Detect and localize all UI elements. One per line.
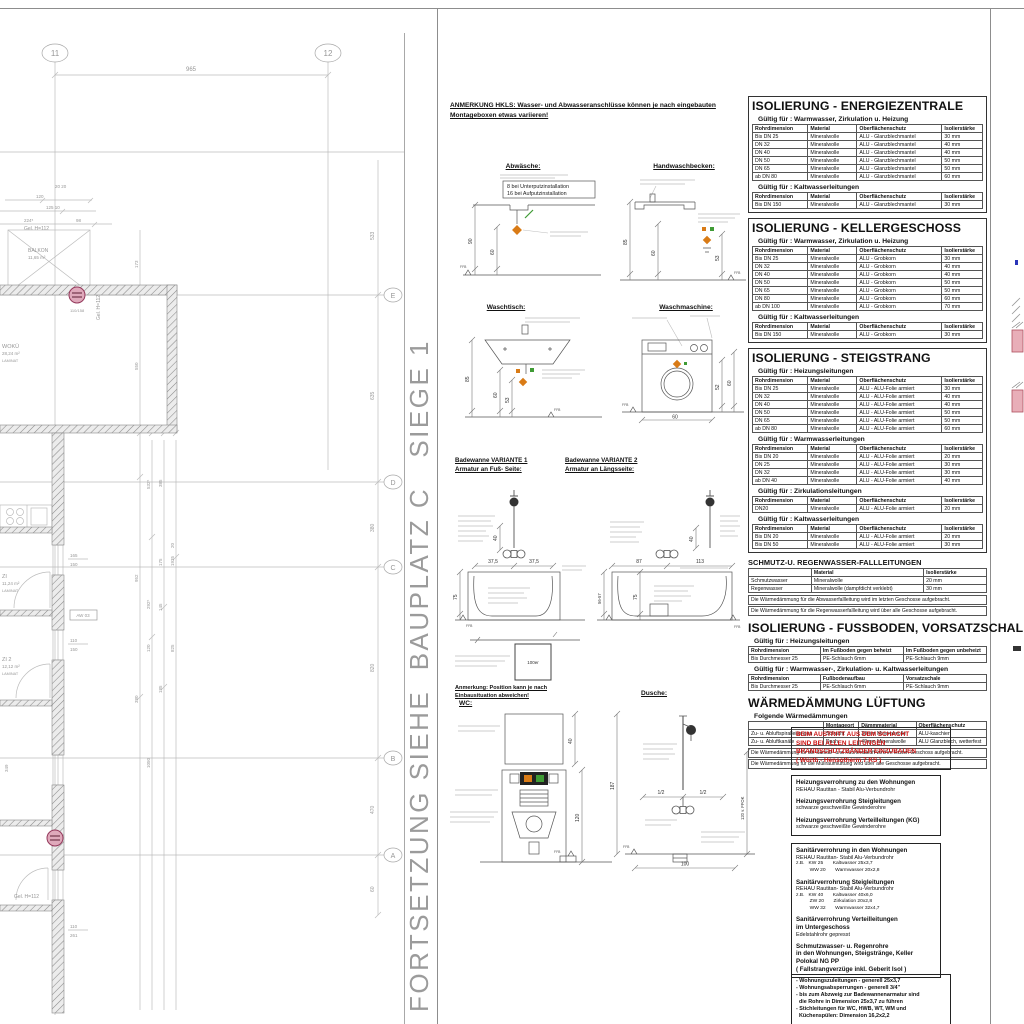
hot-water-mark — [702, 227, 706, 231]
table-row: DN 65MineralwolleALU - Glanzblechmantel5… — [753, 165, 983, 173]
table-header-row: RohrdimensionMaterialOberflächenschutzIs… — [753, 125, 983, 133]
annotation-scribble — [562, 566, 586, 570]
table-cell: ALU - Glanzblechmantel — [857, 165, 942, 173]
column-header: Oberflächenschutz — [857, 445, 942, 453]
table-cell: DN 65 — [753, 165, 808, 173]
spec-line: Schmutzwasser- u. Regenrohre — [796, 943, 936, 951]
dimension-text: 1050 — [146, 757, 151, 768]
table-cell: Mineralwolle — [808, 461, 857, 469]
table-row: RegenwasserMineralwolle (dampfdicht verk… — [749, 585, 987, 593]
note-bullet: - bis zum Abzweig zur Badewannenarmatur … — [796, 992, 946, 999]
insulation-table: ISOLIERUNG - KELLERGESCHOSS Gültig für :… — [748, 218, 987, 343]
table-cell: Mineralwolle — [808, 255, 857, 263]
level-mark — [460, 615, 466, 620]
spec-box: Heizungsverrohrung zu den Wohnungen REHA… — [791, 775, 941, 836]
install-note-line1: 8 bei Unterputzinstallation — [507, 184, 569, 190]
kitchen-counter — [0, 505, 52, 529]
dimension-text: 1/2 — [700, 790, 707, 796]
abwaesche-drawing: 8 bei Unterputzinstallation 16 bei Aufpu… — [455, 172, 605, 287]
table-cell: Bis DN 150 — [753, 201, 808, 209]
dimension-text: 292⁵ — [146, 599, 151, 609]
table-cell: Bis Durchmesser 25 — [749, 655, 821, 663]
table-cell: 50 mm — [942, 409, 983, 417]
data-table: MaterialIsolierstärke SchmutzwasserMiner… — [748, 568, 987, 593]
table-cell: 60 mm — [942, 295, 983, 303]
dimension-text: 185 — [158, 685, 163, 693]
table-cell: PE-Schlauch 6mm — [820, 683, 903, 691]
table-cell: ALU - Grobkorn — [857, 271, 942, 279]
table-cell: DN 40 — [753, 271, 808, 279]
table-cell: Bis DN 50 — [753, 541, 808, 549]
column-header: Material — [808, 125, 857, 133]
cold-water-mark — [684, 362, 687, 365]
room-note: Gel. H=112 — [14, 894, 39, 900]
grid-bubble-label: C — [390, 565, 395, 572]
table-row: ab DN 80MineralwolleALU - Glanzblechmant… — [753, 173, 983, 181]
riser-symbol — [69, 287, 85, 303]
grid-bubble-label: D — [390, 480, 395, 487]
leader-line — [523, 230, 548, 233]
table-cell: ALU - Grobkorn — [857, 331, 942, 339]
table-note: Die Wärmedämmung für die Regenwasserfall… — [748, 606, 987, 616]
dimension-text: 187 — [610, 781, 616, 790]
table-cell: 40 mm — [942, 401, 983, 409]
cold-water-mark — [530, 368, 534, 372]
dimension-text: 1/2 — [658, 790, 665, 796]
label-badewanne2: Badewanne VARIANTE 2 Armatur an Längssei… — [565, 456, 637, 475]
table-cell: Mineralwolle (dampfdicht verklebt) — [811, 585, 923, 593]
table-header-row: RohrdimensionMaterialOberflächenschutzIs… — [753, 525, 983, 533]
grid-bubble-label: 11 — [51, 49, 60, 58]
table-cell: DN 80 — [753, 295, 808, 303]
shower-head-icon — [510, 498, 519, 507]
leader-line — [667, 318, 712, 346]
data-table: RohrdimensionMaterialOberflächenschutzIs… — [752, 444, 983, 485]
note-bullet: die Rohre in Dimension 25x3,7 zu führen — [796, 999, 946, 1006]
dimension-text: 380 — [370, 523, 376, 532]
table-cell: Mineralwolle — [808, 173, 857, 181]
insulation-table: ISOLIERUNG - STEIGSTRANG Gültig für : He… — [748, 348, 987, 553]
dimension-text: 53 — [715, 255, 721, 261]
riser-note: 110/158 — [70, 308, 85, 313]
column-header: Material — [808, 525, 857, 533]
table-note: Die Wärmedämmung für die Abwasserfalllei… — [748, 595, 987, 605]
table-cell: DN 50 — [753, 409, 808, 417]
column-header: Material — [808, 497, 857, 505]
level-mark — [548, 412, 554, 417]
table-cell: ALU - ALU-Folie armiert — [857, 425, 942, 433]
table-row: Bis DN 150MineralwolleALU - Glanzblechma… — [753, 201, 983, 209]
table-row: ab DN 40MineralwolleALU - ALU-Folie armi… — [753, 477, 983, 485]
column-header: Isolierstärke — [942, 247, 983, 255]
level-mark — [465, 270, 471, 275]
column-header: Material — [808, 323, 857, 331]
table-cell: 30 mm — [942, 385, 983, 393]
table-section: Gültig für : Heizungsleitungen Rohrdimen… — [748, 638, 987, 663]
data-table: RohrdimensionMaterialOberflächenschutzIs… — [752, 376, 983, 433]
spec-box: Sanitärverrohrung in den Wohnungen REHAU… — [791, 843, 941, 978]
table-cell: 20 mm — [942, 453, 983, 461]
table-cell: 50 mm — [942, 287, 983, 295]
room-label: ZI 2 — [2, 657, 11, 663]
table-cell: ALU - ALU-Folie armiert — [857, 453, 942, 461]
level-label: FFB — [623, 845, 630, 849]
table-cell: DN 25 — [753, 461, 808, 469]
table-cell: ALU - ALU-Folie armiert — [857, 417, 942, 425]
data-table: RohrdimensionMaterialOberflächenschutzIs… — [752, 524, 983, 549]
table-row: Bis DN 20MineralwolleALU - ALU-Folie arm… — [753, 533, 983, 541]
column-header: Material — [808, 247, 857, 255]
hkls-remark-line2: Montageboxen etwas variieren! — [450, 111, 742, 121]
room-note: Gel. H=112 — [96, 295, 102, 320]
table-subtitle: Folgende Wärmedämmungen — [754, 713, 987, 720]
spec-line: Heizungsverrohrung Steigleitungen — [796, 798, 936, 806]
dimension-text: 60 — [493, 392, 499, 398]
level-label: FFB — [554, 408, 561, 412]
table-cell: 50 mm — [942, 157, 983, 165]
table-header-row: RohrdimensionFußbodenaufbauVorsatzschale — [749, 675, 987, 683]
table-row: DN 25MineralwolleALU - ALU-Folie armiert… — [753, 461, 983, 469]
table-cell: ALU - Glanzblechmantel — [857, 149, 942, 157]
table-cell: Schmutzwasser — [749, 577, 812, 585]
table-cell: ALU - ALU-Folie armiert — [857, 505, 942, 513]
table-section: Gültig für : Zirkulationsleitungen Rohrd… — [752, 488, 983, 513]
dimension-text: 85 — [465, 376, 471, 382]
data-table: RohrdimensionIm Fußboden gegen beheiztIm… — [748, 646, 987, 663]
dimension-text: 125 10 — [46, 205, 60, 210]
column-header: Oberflächenschutz — [857, 125, 942, 133]
table-cell: Mineralwolle — [808, 133, 857, 141]
table-cell: 30 mm — [924, 585, 987, 593]
table-cell: 60 mm — [942, 173, 983, 181]
spec-line: Heizungsverrohrung Verteilleitungen (KG) — [796, 817, 936, 825]
table-cell: Mineralwolle — [808, 157, 857, 165]
badewanne2-title: Badewanne VARIANTE 2 — [565, 456, 637, 465]
table-cell: Mineralwolle — [808, 533, 857, 541]
table-header-row: RohrdimensionMaterialOberflächenschutzIs… — [753, 193, 983, 201]
spec-line: Heizungsverrohrung zu den Wohnungen — [796, 779, 936, 787]
valve-icon — [519, 378, 527, 386]
column-header: Fußbodenaufbau — [820, 675, 903, 683]
table-cell: ALU - ALU-Folie armiert — [857, 469, 942, 477]
column-header: Rohrdimension — [753, 445, 808, 453]
annotation-scribble — [455, 656, 510, 666]
room-label: BALKON — [28, 248, 49, 254]
dimension-text: 113 — [696, 559, 704, 565]
table-cell: Bis DN 150 — [753, 331, 808, 339]
level-mark — [728, 275, 734, 280]
table-cell: PE-Schlauch 9mm — [903, 683, 986, 691]
shower-head-icon — [686, 725, 696, 735]
grid-bubble-label: 12 — [324, 49, 333, 58]
annotation-scribble — [640, 180, 695, 184]
table-header-row: RohrdimensionMaterialOberflächenschutzIs… — [753, 377, 983, 385]
annotation-scribble — [458, 726, 500, 731]
table-cell: 30 mm — [942, 541, 983, 549]
data-table: RohrdimensionMaterialOberflächenschutzIs… — [752, 496, 983, 513]
table-cell: ALU - Glanzblechmantel — [857, 173, 942, 181]
table-cell: Mineralwolle — [808, 541, 857, 549]
data-table: RohrdimensionMaterialOberflächenschutzIs… — [752, 246, 983, 311]
level-label: FFB — [734, 625, 741, 629]
dimension-text: 100 — [681, 862, 690, 868]
dimension-text: 40 — [493, 535, 499, 541]
table-header-row: RohrdimensionMaterialOberflächenschutzIs… — [753, 445, 983, 453]
room-area: 11,65 m² — [28, 255, 46, 260]
column-header: Oberflächenschutz — [857, 525, 942, 533]
blue-mark — [1015, 260, 1018, 265]
table-cell: 30 mm — [942, 133, 983, 141]
column-header: Oberflächenschutz — [857, 497, 942, 505]
position-remark: Anmerkung: Position kann je nach Einbaus… — [455, 684, 547, 701]
table-cell: Bis DN 25 — [753, 385, 808, 393]
window-dim: 150 — [70, 647, 78, 652]
dimension-text: 349 — [4, 764, 9, 772]
table-row: DN 50MineralwolleALU - Glanzblechmantel5… — [753, 157, 983, 165]
flush-button-green — [536, 775, 544, 782]
table-row: DN 32MineralwolleALU - Grobkorn40 mm — [753, 263, 983, 271]
hot-water-mark — [516, 369, 520, 373]
column-header: Im Fußboden gegen unbeheizt — [903, 647, 986, 655]
label-wc: WC: — [459, 700, 489, 707]
dimension-text: 173 — [134, 260, 139, 268]
table-cell: Mineralwolle — [808, 149, 857, 157]
column-header: Isolierstärke — [942, 497, 983, 505]
dimension-text: 90 — [468, 238, 474, 244]
column-header: Rohrdimension — [753, 377, 808, 385]
hkls-remark-line1: ANMERKUNG HKLS: Wasser- und Abwasseransc… — [450, 101, 742, 111]
table-cell: ALU - Grobkorn — [857, 255, 942, 263]
warning-line: BRANDSCHUTZBÄNDER EINZUBAUEN — [796, 748, 946, 757]
table-cell: ALU - ALU-Folie armiert — [857, 409, 942, 417]
note-bullet: - Wohnungszuleitungen - generell 25x3,7 — [796, 978, 946, 985]
table-cell: Regenwasser — [749, 585, 812, 593]
grid-bubble-label: B — [391, 756, 396, 763]
wc-drawing: 40 120 FFB — [450, 712, 620, 872]
floor-plan: 11 12 E D C B A 965 533 635 380 820 470 … — [0, 0, 437, 1024]
table-row: ab DN 80MineralwolleALU - ALU-Folie armi… — [753, 425, 983, 433]
table-header-row: RohrdimensionIm Fußboden gegen beheiztIm… — [749, 647, 987, 655]
table-cell: ALU - Grobkorn — [857, 303, 942, 311]
table-cell: 40 mm — [942, 477, 983, 485]
table-cell: Mineralwolle — [808, 393, 857, 401]
table-cell: 40 mm — [942, 393, 983, 401]
annotation-scribble — [455, 790, 498, 795]
dimension-text: 532⁵ — [146, 479, 151, 489]
continuation-label: FORTSETZUNG SIEHE BAUPLATZ C SIEGE 1 — [404, 30, 438, 1012]
table-cell: DN 65 — [753, 417, 808, 425]
column-header: Material — [808, 445, 857, 453]
column-header: Isolierstärke — [924, 569, 987, 577]
dimension-text: 550 — [134, 362, 139, 370]
column-header: Rohrdimension — [753, 125, 808, 133]
room-note: Gel. H=112 — [24, 226, 49, 232]
table-row: Bis DN 20MineralwolleALU - ALU-Folie arm… — [753, 453, 983, 461]
table-cell: ab DN 80 — [753, 173, 808, 181]
table-row: DN 50MineralwolleALU - ALU-Folie armiert… — [753, 409, 983, 417]
badewanne1-title: Badewanne VARIANTE 1 — [455, 456, 527, 465]
dimension-text: 175 — [158, 558, 163, 566]
annotation-scribble — [500, 175, 568, 178]
room-area: 12,12 m² — [2, 664, 20, 669]
mixer-tap-symbol — [672, 797, 694, 814]
dimension-text: 120 — [146, 644, 151, 652]
level-label: FFB — [460, 265, 467, 269]
level-label: FFB — [554, 850, 561, 854]
column-header: Rohrdimension — [749, 675, 821, 683]
table-cell: Mineralwolle — [808, 271, 857, 279]
column-header: Rohrdimension — [753, 323, 808, 331]
table-cell: ALU - ALU-Folie armiert — [857, 393, 942, 401]
level-mark — [631, 849, 637, 854]
table-cell: ALU - ALU-Folie armiert — [857, 385, 942, 393]
table-row: ab DN 100MineralwolleALU - Grobkorn70 mm — [753, 303, 983, 311]
room-finish: LAMINAT — [2, 359, 19, 363]
data-table: RohrdimensionMaterialOberflächenschutzIs… — [752, 322, 983, 339]
table-cell: PE-Schlauch 6mm — [820, 655, 903, 663]
table-header-row: RohrdimensionMaterialOberflächenschutzIs… — [753, 247, 983, 255]
label-waschtisch: Waschtisch: — [466, 304, 546, 311]
hatch-mark — [1012, 322, 1023, 328]
table-subtitle: Gültig für : Zirkulationsleitungen — [758, 488, 983, 495]
table-section: Gültig für : Kaltwasserleitungen Rohrdim… — [752, 516, 983, 549]
table-cell: Mineralwolle — [808, 417, 857, 425]
data-table: RohrdimensionMaterialOberflächenschutzIs… — [752, 124, 983, 181]
cold-water-mark — [710, 227, 714, 231]
handwaschbecken-drawing: 85 60 53 FFB — [610, 172, 750, 292]
dimension-text: 40 — [689, 536, 695, 542]
table-cell: Mineralwolle — [808, 303, 857, 311]
column-header: Vorsatzschale — [903, 675, 986, 683]
column-header: Material — [808, 377, 857, 385]
table-subtitle: Gültig für : Warmwasser, Zirkulation u. … — [758, 116, 983, 123]
dimension-text: 120 — [36, 194, 44, 199]
annotation-scribble — [654, 586, 694, 601]
dimension-text: 37,5 — [529, 559, 539, 565]
annotation-scribble — [610, 522, 644, 542]
table-row: SchmutzwasserMineralwolle20 mm — [749, 577, 987, 585]
dimension-text: 60 — [727, 380, 733, 386]
table-cell: 30 mm — [942, 461, 983, 469]
table-cell: 30 mm — [942, 469, 983, 477]
dimension-text: 37,5 — [488, 559, 498, 565]
dimension-text: 825 — [170, 644, 175, 652]
label-waschmaschine: Waschmaschine: — [636, 304, 736, 311]
table-row: Bis Durchmesser 25PE-Schlauch 6mmPE-Schl… — [749, 683, 987, 691]
annotation-scribble — [458, 516, 495, 541]
data-table: RohrdimensionMaterialOberflächenschutzIs… — [752, 192, 983, 209]
table-cell: ALU - Grobkorn — [857, 279, 942, 287]
table-cell: 40 mm — [942, 271, 983, 279]
element-tag: AW 03 — [76, 613, 90, 618]
spec-line: in den Wohnungen, Steigstränge, Keller — [796, 950, 936, 958]
dusche-drawing: 187 120 v. FFOK 1/2 1/2 100 FFB — [605, 702, 765, 872]
spec-line: WW 32 Warmwasser 32x4,7 — [796, 906, 936, 912]
table-cell: ALU - ALU-Folie armiert — [857, 401, 942, 409]
spec-line: WW 20 Warmwasser 20x2,8 — [796, 868, 936, 874]
table-cell: DN 32 — [753, 469, 808, 477]
table-cell: Mineralwolle — [808, 453, 857, 461]
column-header: Isolierstärke — [942, 193, 983, 201]
table-header-row: RohrdimensionMaterialOberflächenschutzIs… — [753, 497, 983, 505]
table-cell: Mineralwolle — [808, 409, 857, 417]
door-swing-arcs — [14, 572, 50, 900]
access-box-drawing: 100er — [455, 628, 585, 686]
table-cell: 20 mm — [924, 577, 987, 585]
warning-line: BEIM AUSTRITT AUS DEM SCHACHT — [796, 731, 946, 740]
table-row: DN 40MineralwolleALU - Grobkorn40 mm — [753, 271, 983, 279]
room-finish: LAMINAT — [2, 589, 19, 593]
room-finish: LAMINAT — [2, 672, 19, 676]
table-cell: 50 mm — [942, 165, 983, 173]
waschtisch-drawing: 85 60 53 FFB — [450, 312, 610, 427]
insulation-table: SCHMUTZ-U. REGENWASSER-FALLLEITUNGEN Mat… — [748, 558, 987, 616]
annotation-scribble — [632, 316, 720, 318]
table-subtitle: Gültig für : Kaltwasserleitungen — [758, 184, 983, 191]
valve-icon — [512, 225, 522, 235]
table-title: SCHMUTZ-U. REGENWASSER-FALLLEITUNGEN — [748, 558, 987, 567]
dimension-text: 952 — [134, 574, 139, 582]
pink-detail-cutoff — [1012, 390, 1023, 412]
label-abwaesche: Abwäsche: — [488, 163, 558, 170]
spec-line: REHAU Rautitan - Stabil Alu-Verbundrohr — [796, 787, 936, 794]
table-cell: ALU - Glanzblechmantel — [857, 141, 942, 149]
column-header: Oberflächenschutz — [857, 377, 942, 385]
grid-bubbles — [42, 44, 402, 862]
hatch-mark — [1012, 382, 1023, 388]
table-section: Gültig für : Warmwasserleitungen Rohrdim… — [752, 436, 983, 485]
room-label: WOKÜ — [2, 343, 19, 350]
table-cell: DN20 — [753, 505, 808, 513]
column-header: Isolierstärke — [942, 377, 983, 385]
table-section: Gültig für : Warmwasser, Zirkulation u. … — [752, 116, 983, 181]
column-header: Isolierstärke — [942, 125, 983, 133]
table-cell: ab DN 40 — [753, 477, 808, 485]
spec-line: ( Fallstrangverzüge inkl. Geberit Isol ) — [796, 966, 936, 974]
table-cell: 20 mm — [942, 533, 983, 541]
table-cell: 70 mm — [942, 303, 983, 311]
column-header: Material — [811, 569, 923, 577]
table-row: DN 50MineralwolleALU - Grobkorn50 mm — [753, 279, 983, 287]
table-row: Bis DN 50MineralwolleALU - ALU-Folie arm… — [753, 541, 983, 549]
table-cell: DN 32 — [753, 141, 808, 149]
right-dimension-chain — [375, 160, 381, 918]
annotation-scribble — [525, 318, 580, 322]
level-label: FFB — [622, 403, 629, 407]
table-cell: Bis DN 20 — [753, 533, 808, 541]
table-cell: DN 50 — [753, 157, 808, 165]
dimension-text: 52 — [715, 384, 721, 390]
riser-symbol-2 — [47, 830, 63, 846]
note-bullet: Küchenspülen: Dimension 16,2x2,2 — [796, 1013, 946, 1020]
table-cell: Bis Durchmesser 25 — [749, 683, 821, 691]
table-cell: ALU - Grobkorn — [857, 263, 942, 271]
badewanne2-subtitle: Armatur an Längsseite: — [565, 465, 637, 474]
table-row: DN 32MineralwolleALU - Glanzblechmantel4… — [753, 141, 983, 149]
column-header: Isolierstärke — [942, 445, 983, 453]
table-cell: Mineralwolle — [808, 505, 857, 513]
table-cell: DN 40 — [753, 401, 808, 409]
window-dim: 165 — [70, 553, 78, 558]
general-notes-box: - Wohnungszuleitungen - generell 25x3,7 … — [791, 974, 951, 1024]
table-section: MaterialIsolierstärke SchmutzwasserMiner… — [748, 568, 987, 593]
dimension-text: 224⁵ — [24, 218, 34, 223]
table-subtitle: Gültig für : Kaltwasserleitungen — [758, 516, 983, 523]
room-label: ZI — [2, 574, 7, 580]
table-row: Bis DN 25MineralwolleALU - ALU-Folie arm… — [753, 385, 983, 393]
window-dim: 110 — [70, 638, 78, 643]
dimension-text: 53 — [505, 397, 511, 403]
